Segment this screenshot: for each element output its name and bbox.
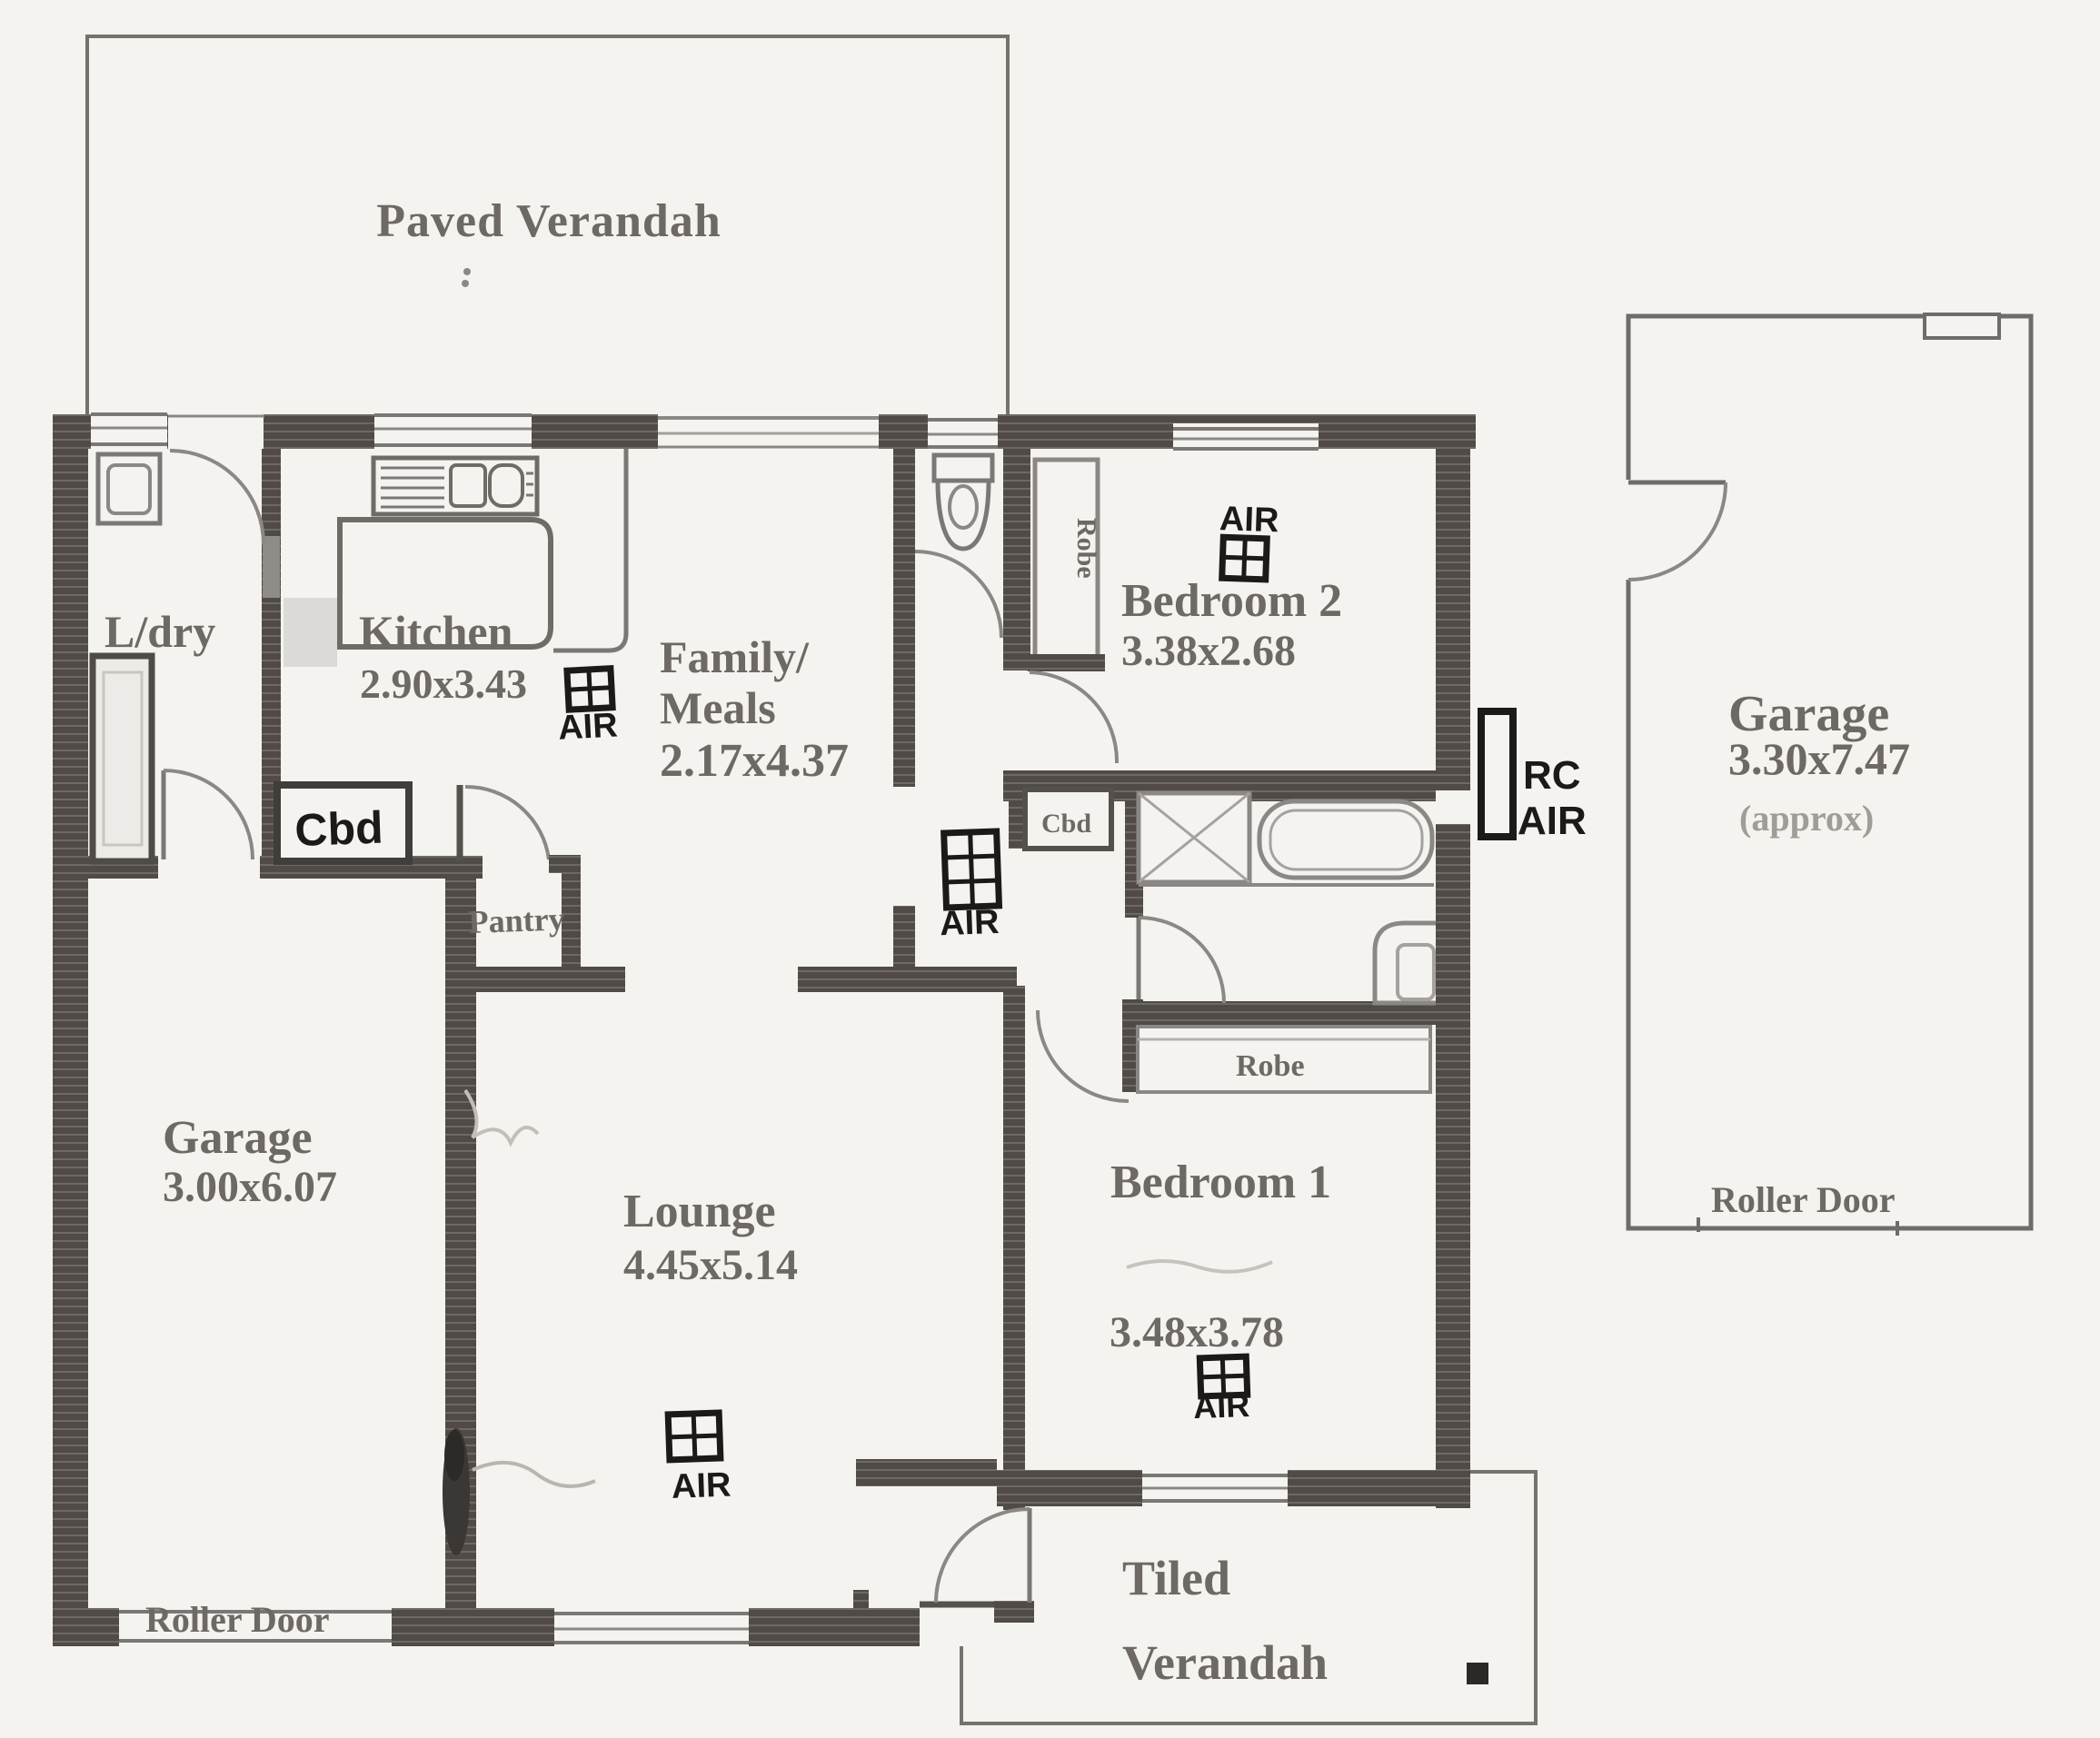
svg-text:Robe: Robe (1236, 1049, 1305, 1083)
svg-text:Cbd: Cbd (1041, 809, 1091, 839)
svg-text:4.45x5.14: 4.45x5.14 (623, 1241, 798, 1289)
svg-text:L/dry: L/dry (105, 606, 215, 657)
svg-text:3.38x2.68: 3.38x2.68 (1121, 627, 1296, 675)
svg-text:Lounge: Lounge (623, 1186, 776, 1237)
svg-text:Pantry: Pantry (468, 900, 565, 940)
svg-text:AIR: AIR (1518, 799, 1587, 843)
svg-text:Verandah: Verandah (1122, 1635, 1328, 1690)
svg-text:RC: RC (1523, 753, 1581, 798)
svg-text:3.48x3.78: 3.48x3.78 (1110, 1308, 1284, 1356)
svg-text:AIR: AIR (939, 903, 1000, 943)
svg-text:AIR: AIR (671, 1466, 732, 1506)
svg-text:Robe: Robe (1071, 518, 1101, 579)
svg-text:Family/: Family/ (660, 631, 810, 682)
svg-text:Bedroom 1: Bedroom 1 (1110, 1157, 1331, 1208)
svg-text:Bedroom 2: Bedroom 2 (1121, 575, 1342, 627)
svg-text:Garage: Garage (163, 1112, 313, 1164)
svg-text:Roller Door: Roller Door (145, 1599, 330, 1640)
svg-text:Kitchen: Kitchen (359, 606, 513, 657)
svg-text:2.17x4.37: 2.17x4.37 (660, 735, 849, 787)
svg-text:Cbd: Cbd (294, 802, 383, 856)
svg-text:2.90x3.43: 2.90x3.43 (360, 660, 527, 707)
svg-text:3.00x6.07: 3.00x6.07 (163, 1163, 337, 1211)
svg-text:3.30x7.47: 3.30x7.47 (1728, 733, 1910, 784)
svg-text:AIR: AIR (1192, 1386, 1249, 1425)
svg-text:(approx): (approx) (1739, 798, 1874, 839)
svg-text:AIR: AIR (1219, 500, 1279, 540)
svg-text:Roller Door: Roller Door (1711, 1179, 1896, 1220)
svg-text:Tiled: Tiled (1122, 1551, 1230, 1605)
svg-text:Meals: Meals (660, 682, 776, 733)
svg-text:Paved Verandah: Paved Verandah (376, 195, 722, 247)
svg-text:AIR: AIR (557, 706, 619, 747)
